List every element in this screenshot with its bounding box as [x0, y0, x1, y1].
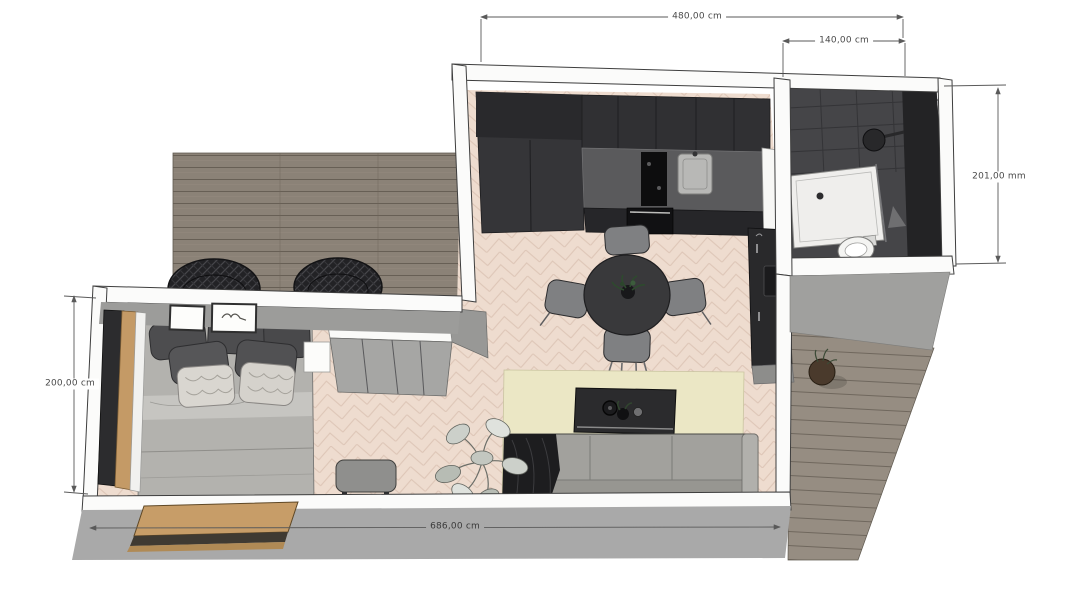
- patterned-pillow-left: [177, 364, 236, 408]
- kitchen-upper-cabinets: [582, 95, 770, 152]
- picture-frame-left: [170, 305, 205, 330]
- wall-east-lower: [776, 274, 792, 506]
- wall-bathroom-divider: [774, 78, 792, 276]
- entry-step: [127, 502, 298, 552]
- dim-label-bath-width: 140,00 cm: [815, 36, 873, 47]
- bathroom: [786, 82, 948, 272]
- dim-label-bath-depth: 201,00 mm: [968, 172, 1030, 183]
- dining-chair-top: [604, 224, 650, 255]
- picture-frame-bird: [212, 304, 256, 333]
- nightstand: [304, 342, 330, 372]
- console-bowl: [634, 408, 643, 417]
- shower-drain: [817, 193, 824, 200]
- bed: [138, 314, 314, 500]
- tv-console: [574, 388, 676, 434]
- dim-label-total-width: 686,00 cm: [426, 522, 484, 533]
- wall-north-upper: [452, 64, 940, 92]
- patterned-pillow-right: [238, 362, 295, 407]
- side-deck: [788, 330, 934, 560]
- dim-label-top-width: 480,00 cm: [668, 12, 726, 23]
- dim-label-bedroom-depth: 200,00 cm: [41, 379, 99, 390]
- cooktop: [641, 152, 667, 206]
- floor-plan-canvas: 480,00 cm 140,00 cm 201,00 mm 200,00 cm …: [0, 0, 1083, 610]
- kitchen-sink: [678, 152, 712, 195]
- kitchen-tall-cabinet-top: [476, 92, 582, 140]
- bench: [336, 460, 396, 498]
- bedroom-glass-door: [98, 310, 146, 492]
- floor-plan-render: [0, 0, 1083, 610]
- faucet: [693, 152, 698, 157]
